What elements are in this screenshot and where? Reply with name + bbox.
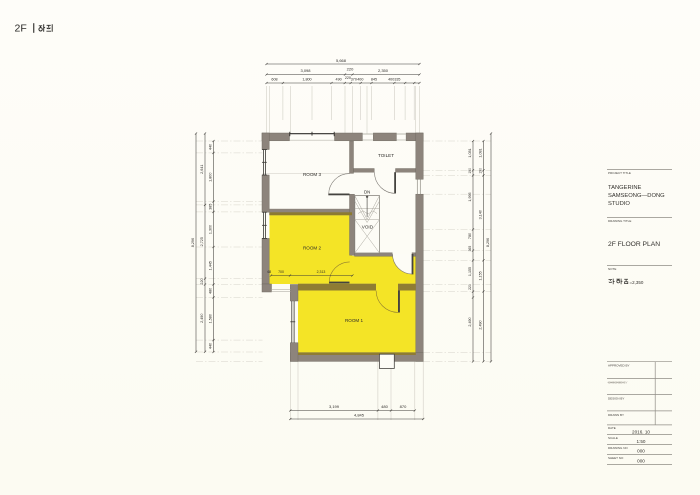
svg-text:2,490: 2,490 xyxy=(200,314,204,323)
svg-text:ROOM 3: ROOM 3 xyxy=(303,172,322,177)
svg-text:365: 365 xyxy=(468,246,472,252)
svg-text:TANGERINE: TANGERINE xyxy=(608,185,642,191)
svg-text:220: 220 xyxy=(347,67,354,72)
svg-text:220: 220 xyxy=(200,278,204,284)
svg-text:3,199: 3,199 xyxy=(329,404,340,409)
svg-text:000: 000 xyxy=(637,458,645,463)
svg-text:190: 190 xyxy=(479,168,483,174)
svg-text:ROOM 2: ROOM 2 xyxy=(303,246,322,251)
svg-text:NOTE: NOTE xyxy=(608,267,616,271)
svg-text:400: 400 xyxy=(357,77,363,81)
svg-text:1:50: 1:50 xyxy=(637,439,646,444)
svg-text:4,845: 4,845 xyxy=(354,413,365,418)
svg-text:5,668: 5,668 xyxy=(336,58,347,63)
svg-text:2,350: 2,350 xyxy=(378,68,389,73)
svg-text:68: 68 xyxy=(267,270,271,274)
svg-text:870: 870 xyxy=(400,404,407,409)
svg-text:8,296: 8,296 xyxy=(191,238,195,247)
svg-text:TOILET: TOILET xyxy=(378,153,394,158)
svg-text:SHEET NO: SHEET NO xyxy=(608,456,624,460)
svg-text:1,800: 1,800 xyxy=(209,173,213,182)
svg-text:DESIGN BY: DESIGN BY xyxy=(608,397,624,401)
svg-text:1,580: 1,580 xyxy=(209,314,213,323)
svg-text:608: 608 xyxy=(271,77,277,81)
svg-text:385: 385 xyxy=(209,204,213,210)
svg-text:3,098: 3,098 xyxy=(300,68,311,73)
svg-text:DN: DN xyxy=(364,190,370,195)
svg-text:440: 440 xyxy=(209,343,213,349)
svg-text:1,155: 1,155 xyxy=(479,271,483,280)
svg-text:845: 845 xyxy=(371,77,377,81)
svg-text:780: 780 xyxy=(468,233,472,239)
svg-text:1,155: 1,155 xyxy=(468,267,472,276)
svg-text:700: 700 xyxy=(278,270,284,274)
svg-text:2F FLOOR PLAN: 2F FLOOR PLAN xyxy=(608,241,660,248)
svg-text:ROOM 1: ROOM 1 xyxy=(345,318,364,323)
svg-text:1,081: 1,081 xyxy=(479,148,483,157)
svg-text:STUDIO: STUDIO xyxy=(608,201,630,207)
svg-text:=2,350: =2,350 xyxy=(630,280,644,285)
svg-text:440: 440 xyxy=(209,144,213,150)
svg-text:1,995: 1,995 xyxy=(468,192,472,201)
svg-text:480: 480 xyxy=(209,288,213,294)
svg-text:SCALE: SCALE xyxy=(608,436,618,440)
svg-text:2F: 2F xyxy=(15,23,27,35)
svg-text:2,725: 2,725 xyxy=(200,237,204,246)
svg-text:000: 000 xyxy=(637,448,645,453)
svg-text:2,490: 2,490 xyxy=(468,317,472,326)
svg-text:1,081: 1,081 xyxy=(468,148,472,157)
svg-text:DRAWING NO: DRAWING NO xyxy=(608,446,628,450)
svg-text:1,300: 1,300 xyxy=(209,225,213,234)
svg-text:3,140: 3,140 xyxy=(479,210,483,219)
svg-text:2,641: 2,641 xyxy=(200,165,204,174)
svg-text:APPROVED BY: APPROVED BY xyxy=(608,364,630,368)
svg-text:PROJECT TITLE: PROJECT TITLE xyxy=(608,171,631,175)
svg-text:2,313: 2,313 xyxy=(317,270,326,274)
svg-text:1,800: 1,800 xyxy=(302,77,311,81)
svg-text:2016. 10: 2016. 10 xyxy=(632,429,650,434)
svg-text:DRAWN BY: DRAWN BY xyxy=(608,413,624,417)
svg-text:DATE: DATE xyxy=(608,426,616,430)
svg-text:190: 190 xyxy=(468,168,472,174)
svg-text:480: 480 xyxy=(381,404,388,409)
svg-text:335: 335 xyxy=(394,77,400,81)
svg-text:2,490: 2,490 xyxy=(479,320,483,329)
svg-text:220: 220 xyxy=(468,284,472,290)
svg-text:1,445: 1,445 xyxy=(209,261,213,270)
svg-text:8,296: 8,296 xyxy=(486,238,490,247)
svg-text:SAMSEONG—DONG: SAMSEONG—DONG xyxy=(608,193,665,199)
svg-text:370: 370 xyxy=(351,77,357,81)
svg-text:DRAWING TITLE: DRAWING TITLE xyxy=(608,219,631,223)
svg-text:490: 490 xyxy=(336,77,342,81)
svg-text:VOID: VOID xyxy=(362,225,374,230)
